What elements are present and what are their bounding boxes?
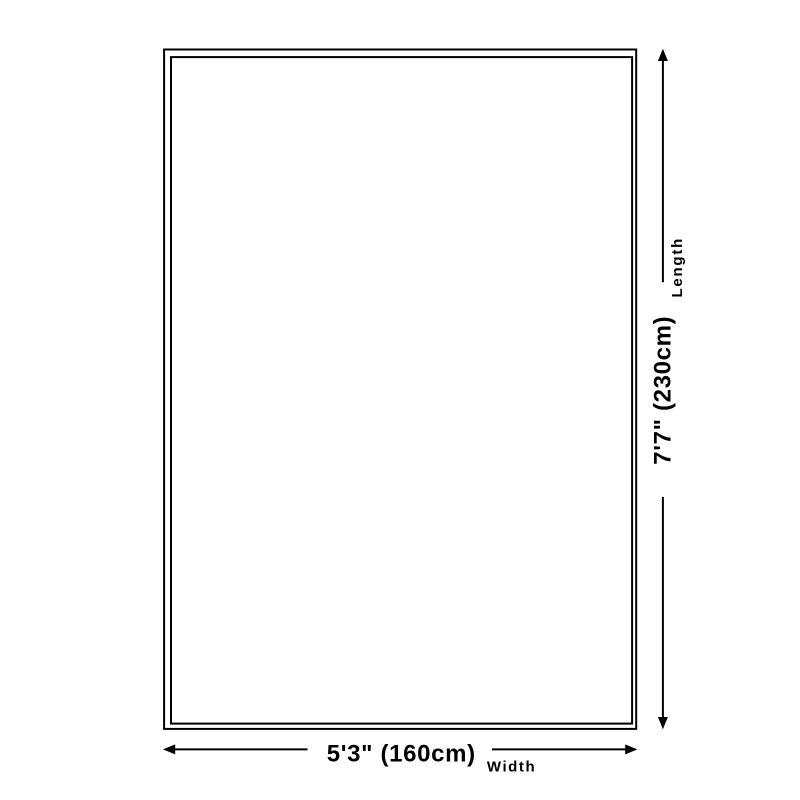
svg-text:Length: Length [669,237,686,298]
svg-text:5'3" (160cm): 5'3" (160cm) [327,740,476,767]
svg-text:Width: Width [487,758,536,775]
svg-text:7'7" (230cm): 7'7" (230cm) [650,316,677,465]
